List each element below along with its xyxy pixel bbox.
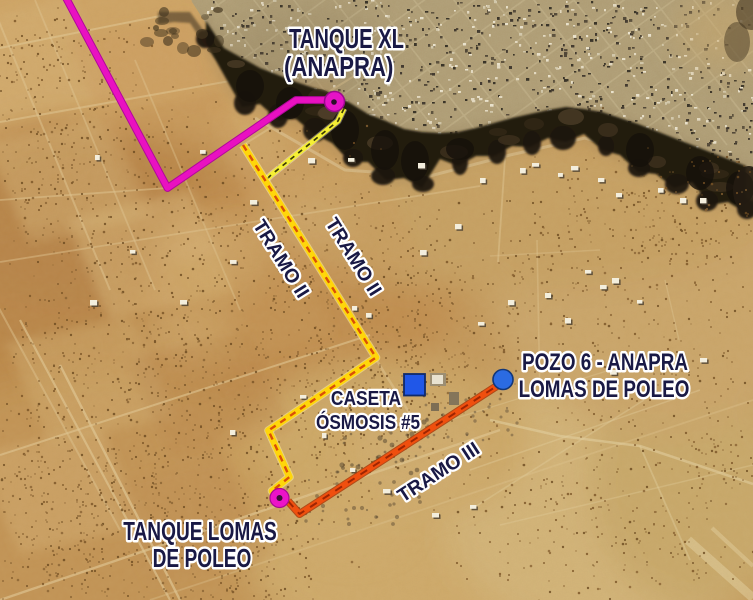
svg-text:POZO 6 - ANAPRA: POZO 6 - ANAPRA (522, 348, 688, 376)
svg-text:LOMAS DE POLEO: LOMAS DE POLEO (519, 375, 690, 403)
svg-text:TANQUE LOMAS: TANQUE LOMAS (123, 517, 277, 545)
svg-text:(ANAPRA): (ANAPRA) (284, 52, 393, 83)
svg-text:TANQUE XL: TANQUE XL (289, 24, 404, 55)
svg-text:CASETA: CASETA (331, 387, 402, 409)
svg-text:ÓSMOSIS #5: ÓSMOSIS #5 (316, 411, 420, 434)
svg-text:DE POLEO: DE POLEO (153, 544, 252, 572)
